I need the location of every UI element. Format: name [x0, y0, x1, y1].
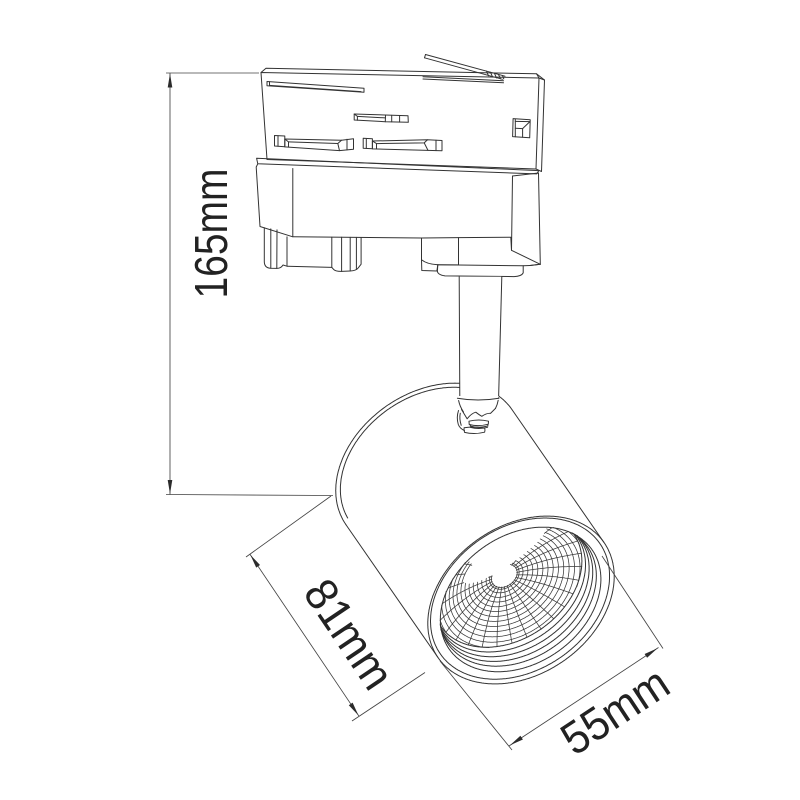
- svg-text:165mm: 165mm: [185, 169, 237, 299]
